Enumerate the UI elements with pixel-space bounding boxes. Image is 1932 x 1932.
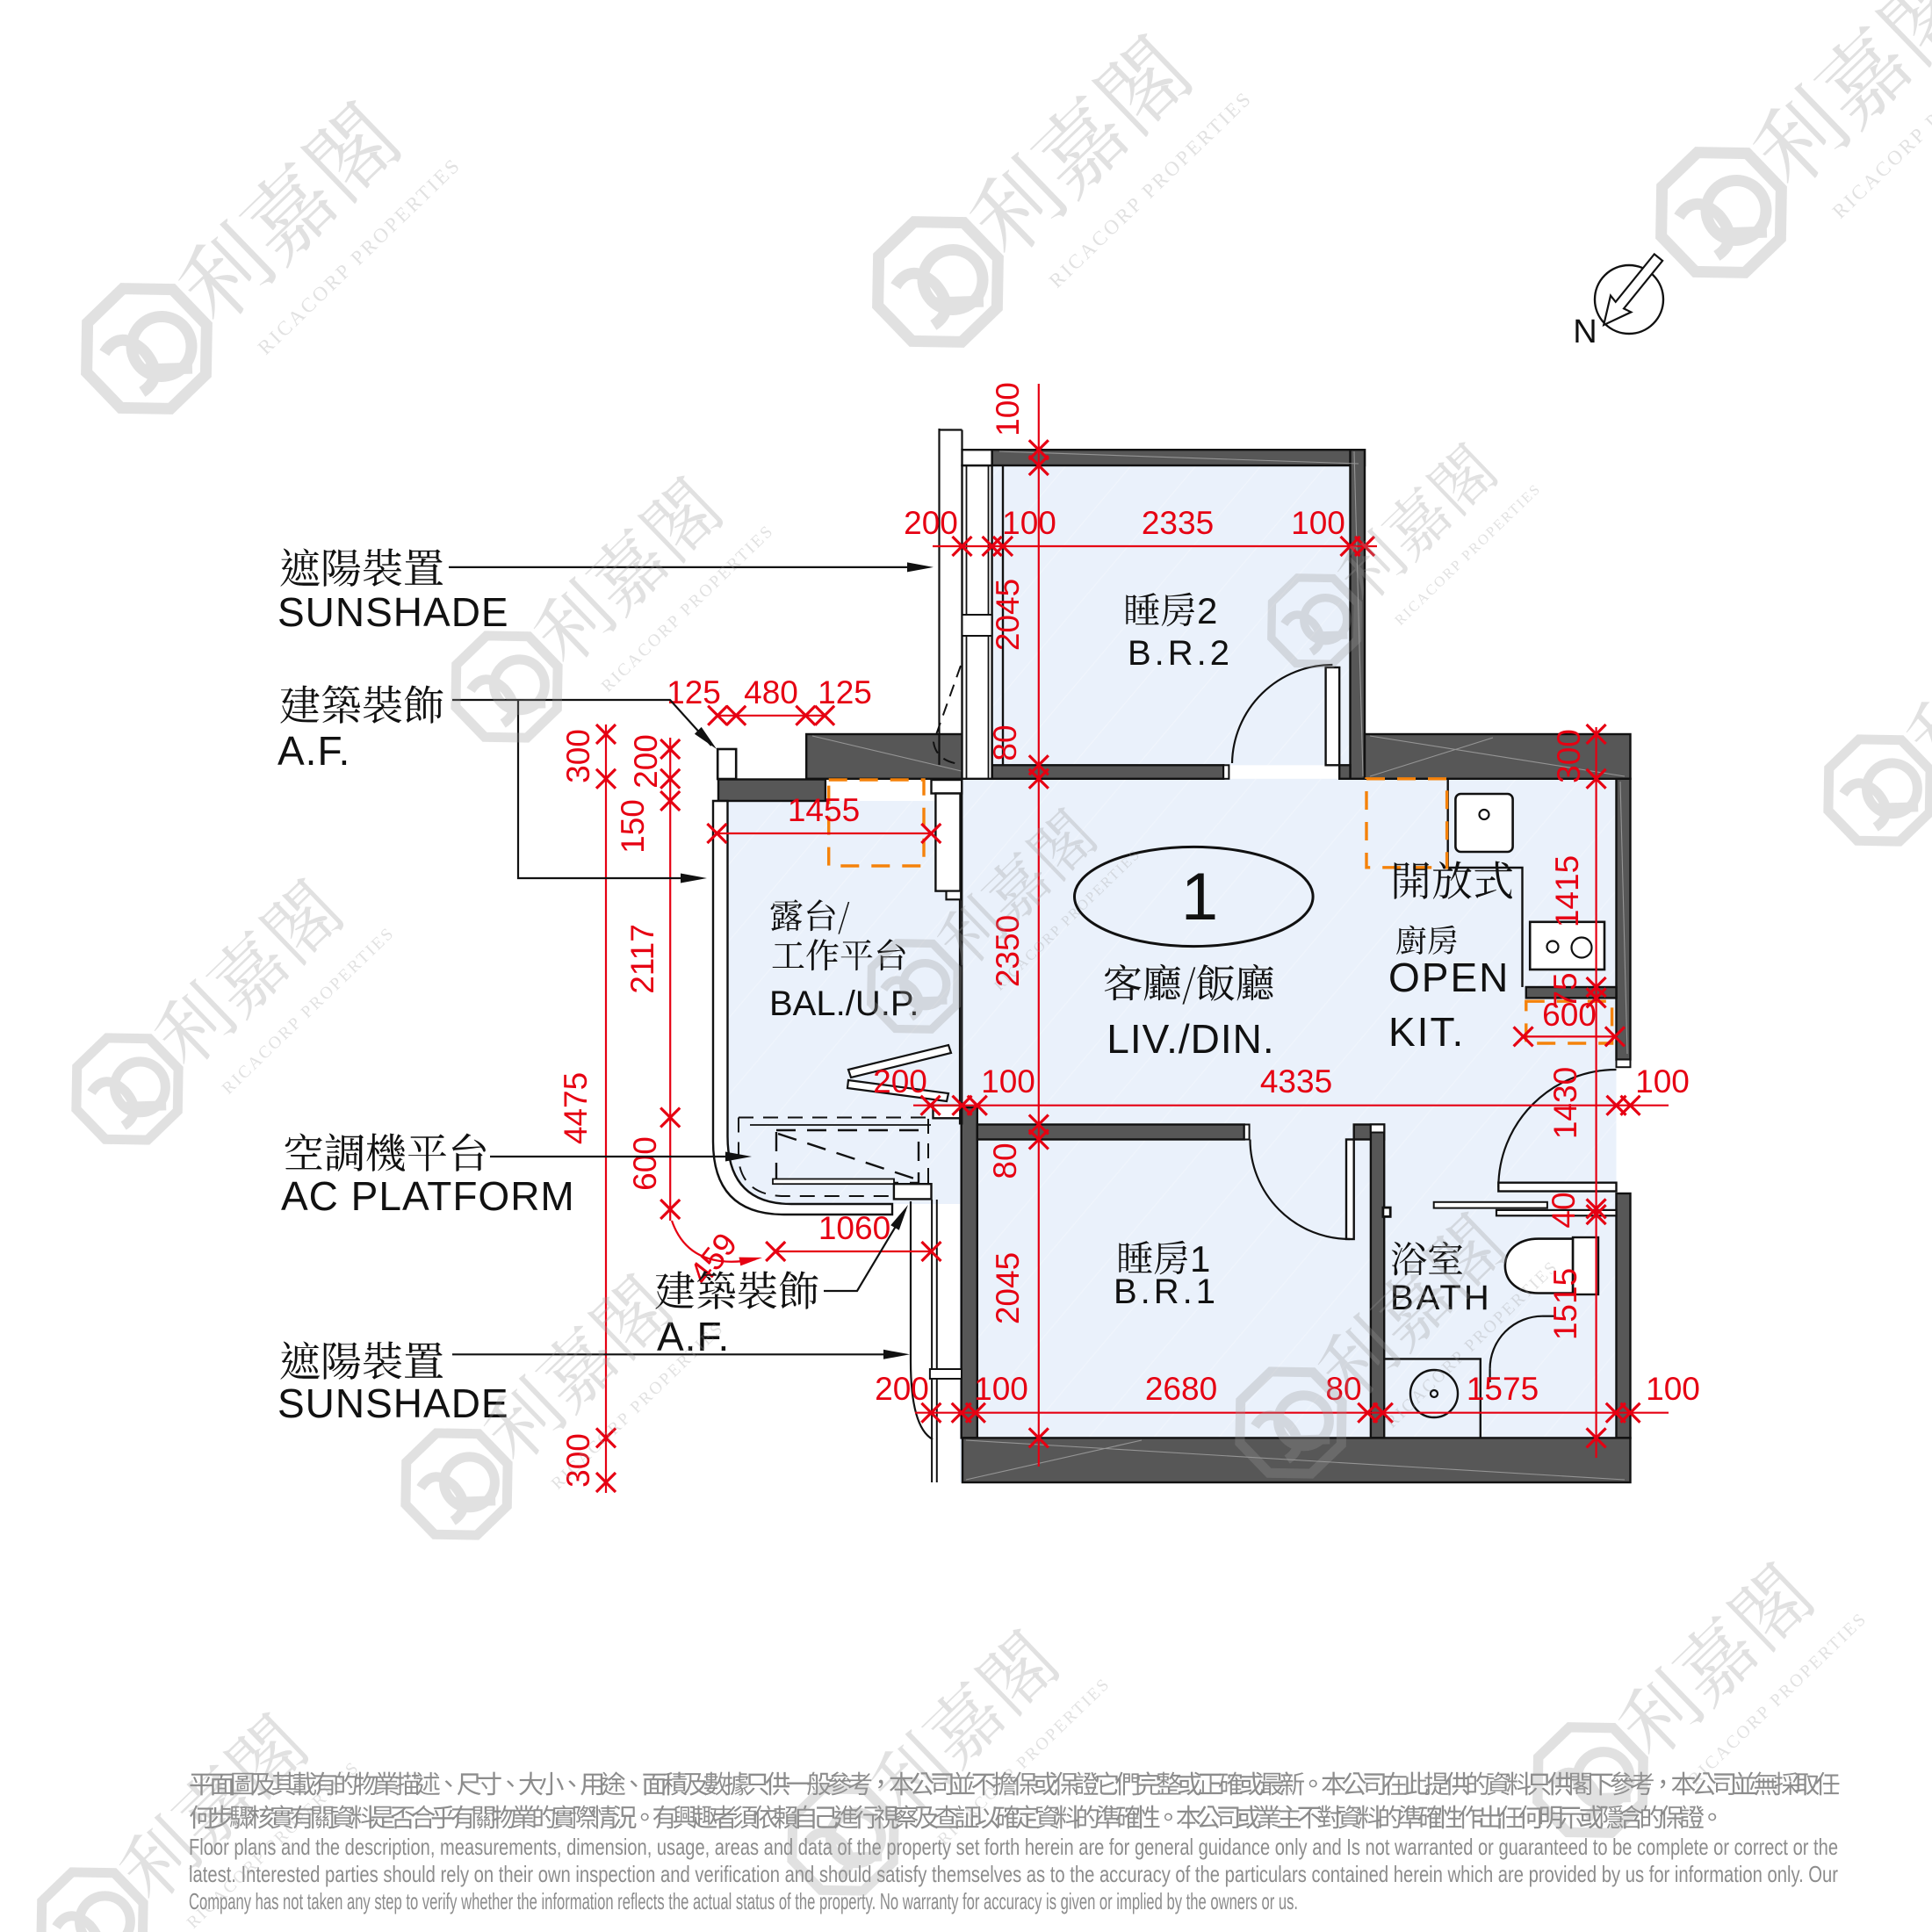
- svg-text:Company has not taken any step: Company has not taken any step to verify…: [189, 1888, 1298, 1914]
- svg-text:100: 100: [1291, 505, 1345, 541]
- svg-text:80: 80: [987, 1143, 1023, 1179]
- svg-text:LIV./DIN.: LIV./DIN.: [1107, 1016, 1274, 1062]
- svg-text:1060: 1060: [818, 1210, 890, 1246]
- svg-text:200: 200: [628, 734, 664, 789]
- svg-text:B.R.1: B.R.1: [1114, 1272, 1219, 1311]
- svg-text:2680: 2680: [1145, 1371, 1217, 1407]
- svg-text:125: 125: [818, 674, 872, 710]
- svg-text:150: 150: [615, 799, 651, 854]
- svg-text:100: 100: [1635, 1063, 1690, 1099]
- svg-text:40: 40: [1546, 1192, 1582, 1228]
- svg-text:2: 2: [1197, 590, 1217, 631]
- svg-text:1415: 1415: [1549, 855, 1585, 927]
- svg-text:600: 600: [627, 1136, 663, 1191]
- svg-text:2335: 2335: [1142, 505, 1214, 541]
- svg-text:latest. Interested parties sho: latest. Interested parties should rely o…: [189, 1861, 1838, 1887]
- svg-text:100: 100: [1002, 505, 1056, 541]
- svg-text:200: 200: [873, 1063, 927, 1099]
- svg-text:4335: 4335: [1260, 1063, 1332, 1099]
- svg-text:480: 480: [744, 674, 798, 710]
- svg-text:200: 200: [904, 505, 958, 541]
- svg-text:BAL./U.P.: BAL./U.P.: [769, 984, 919, 1023]
- svg-text:1575: 1575: [1467, 1371, 1539, 1407]
- svg-text:Floor plans and the descriptio: Floor plans and the description, measure…: [189, 1834, 1838, 1860]
- svg-text:300: 300: [560, 729, 596, 783]
- svg-text:KIT.: KIT.: [1388, 1009, 1465, 1055]
- svg-text:100: 100: [981, 1063, 1035, 1099]
- svg-text:2117: 2117: [624, 924, 660, 994]
- svg-text:300: 300: [1551, 729, 1587, 783]
- svg-text:75: 75: [1547, 972, 1583, 1008]
- svg-text:SUNSHADE: SUNSHADE: [278, 1381, 509, 1426]
- svg-text:2045: 2045: [990, 579, 1026, 651]
- svg-text:N: N: [1573, 314, 1597, 350]
- svg-text:200: 200: [875, 1371, 929, 1407]
- svg-text:100: 100: [990, 382, 1026, 436]
- svg-text:100: 100: [974, 1371, 1028, 1407]
- svg-text:80: 80: [987, 724, 1023, 761]
- svg-text:A.F.: A.F.: [278, 728, 350, 774]
- svg-text:OPEN: OPEN: [1388, 955, 1510, 1000]
- svg-text:B.R.2: B.R.2: [1128, 634, 1233, 673]
- svg-text:100: 100: [1646, 1371, 1700, 1407]
- svg-text:1430: 1430: [1547, 1067, 1583, 1139]
- svg-text:1455: 1455: [788, 792, 860, 828]
- svg-text:1: 1: [1181, 860, 1218, 934]
- svg-text:SUNSHADE: SUNSHADE: [278, 589, 509, 635]
- svg-text:4475: 4475: [558, 1072, 594, 1144]
- svg-text:2045: 2045: [990, 1252, 1026, 1324]
- svg-text:AC PLATFORM: AC PLATFORM: [281, 1173, 575, 1219]
